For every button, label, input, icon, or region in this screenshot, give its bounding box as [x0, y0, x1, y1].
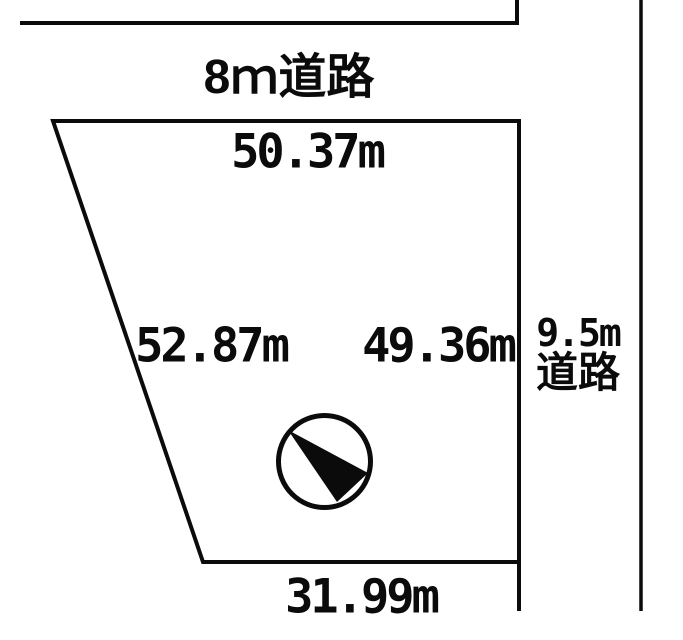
- lot-right-dimension-label: 49.36m: [362, 319, 514, 374]
- lot-top-dimension-label: 50.37m: [231, 125, 383, 180]
- top-road-label: 8ｍ道路: [204, 37, 375, 107]
- top-road-line: [20, 0, 517, 23]
- north-arrow-icon: [279, 416, 371, 508]
- lot-bottom-dimension-label: 31.99m: [285, 570, 437, 625]
- side-road-word-label: 道路: [536, 353, 620, 393]
- side-road-label: 9.5m 道路: [536, 313, 620, 393]
- lot-left-dimension-label: 52.87m: [135, 319, 287, 374]
- side-road-width-label: 9.5m: [536, 313, 620, 353]
- land-lot-diagram: 8ｍ道路 50.37m 52.87m 49.36m 31.99m 9.5m 道路: [0, 0, 683, 640]
